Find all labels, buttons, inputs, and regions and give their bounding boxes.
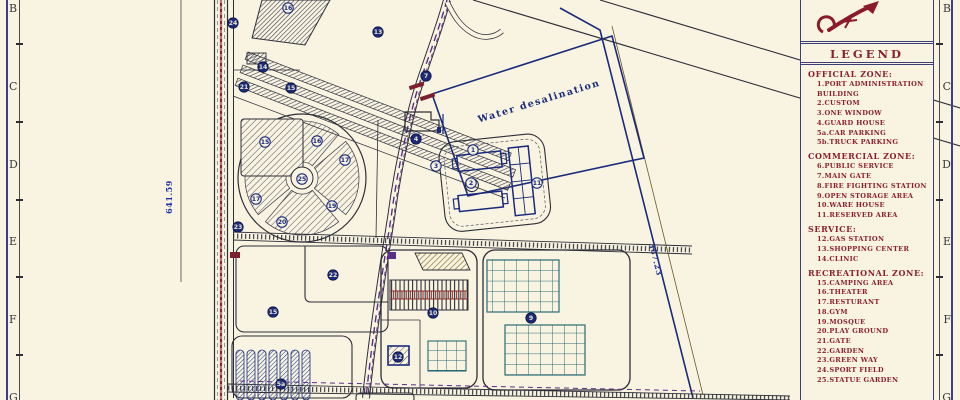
legend-item: 19.MOSQUE — [808, 318, 929, 328]
grid-row-label-f: F — [9, 313, 17, 326]
grid-row-label-d: D — [942, 158, 951, 171]
main-road — [366, 0, 502, 398]
dimension-left: 641.59 — [164, 0, 181, 282]
plan-marker-3: 3 — [431, 161, 441, 171]
svg-text:13: 13 — [374, 29, 383, 36]
grid-row-label-d: D — [9, 158, 18, 171]
plan-marker-10: 10 — [428, 308, 438, 318]
plan-marker-5a: 5a — [276, 379, 286, 389]
plan-marker-19: 19 — [327, 201, 337, 211]
svg-text:25: 25 — [298, 176, 307, 183]
svg-text:4: 4 — [414, 136, 419, 143]
statue-garden-roundabout — [238, 114, 378, 242]
svg-text:19: 19 — [328, 203, 337, 210]
water-desalination-label: Water desalination — [476, 78, 602, 126]
legend-item: 12.GAS STATION — [808, 235, 929, 245]
border-ruler-left: BCDEFG — [0, 0, 30, 400]
north-arrow-box — [801, 0, 933, 42]
legend-item: 13.SHOPPING CENTER — [808, 245, 929, 255]
plan-marker-17: 17 — [340, 155, 350, 165]
grid-tick — [16, 199, 23, 201]
svg-text:16: 16 — [313, 138, 322, 145]
plan-marker-12: 12 — [393, 352, 403, 362]
legend-section-heading: OFFICIAL ZONE: — [808, 69, 929, 80]
open-storage-block — [483, 250, 630, 390]
warehouse-block — [381, 250, 477, 388]
grid-row-label-g: G — [9, 391, 18, 400]
legend-panel: LEGEND OFFICIAL ZONE:1.PORT ADMINISTRATI… — [800, 0, 934, 400]
plan-marker-9: 9 — [526, 313, 536, 323]
grid-row-label-f: F — [943, 313, 951, 326]
grid-tick — [16, 43, 23, 45]
dim-left-value: 641.59 — [164, 180, 174, 214]
legend-item: 2.CUSTOM — [808, 99, 929, 109]
plan-marker-1: 1 — [468, 145, 478, 155]
plan-marker-23: 23 — [233, 222, 243, 232]
legend-item: 7.MAIN GATE — [808, 172, 929, 182]
legend-item: 3.ONE WINDOW — [808, 109, 929, 119]
grid-row-label-g: G — [942, 391, 951, 400]
legend-section-heading: SERVICE: — [808, 224, 929, 235]
plan-marker-16: 16 — [283, 3, 293, 13]
plan-marker-7: 7 — [421, 71, 431, 81]
legend-item: 5b.TRUCK PARKING — [808, 138, 929, 148]
legend-section-heading: COMMERCIAL ZONE: — [808, 151, 929, 162]
plan-marker-22: 22 — [328, 270, 338, 280]
legend-item: 5a.CAR PARKING — [808, 129, 929, 139]
grid-row-label-e: E — [943, 235, 951, 248]
svg-text:11: 11 — [533, 180, 542, 187]
legend-item: 25.STATUE GARDEN — [808, 376, 929, 386]
legend-item: 23.GREEN WAY — [808, 356, 929, 366]
svg-text:15: 15 — [269, 309, 278, 316]
bottom-road — [228, 381, 790, 400]
legend-item: 4.GUARD HOUSE — [808, 119, 929, 129]
legend-section-heading: RECREATIONAL ZONE: — [808, 268, 929, 279]
legend-item: 20.PLAY GROUND — [808, 327, 929, 337]
svg-text:12: 12 — [394, 354, 403, 361]
legend-item: 15.CAMPING AREA — [808, 279, 929, 289]
svg-text:16: 16 — [284, 5, 293, 12]
border-ruler-right: BCDEFG — [930, 0, 960, 400]
grid-tick — [16, 354, 23, 356]
legend-item: 21.GATE — [808, 337, 929, 347]
north-arrow-icon — [801, 0, 933, 40]
plan-marker-13: 13 — [373, 27, 383, 37]
legend-list: OFFICIAL ZONE:1.PORT ADMINISTRATION BUIL… — [801, 66, 933, 400]
svg-text:7: 7 — [424, 73, 428, 80]
svg-text:5a: 5a — [277, 381, 285, 388]
grid-row-label-b: B — [9, 2, 17, 15]
legend-item: 1.PORT ADMINISTRATION BUILDING — [808, 80, 929, 99]
plan-marker-15: 15 — [260, 137, 270, 147]
camping-parcel — [230, 246, 388, 332]
svg-text:9: 9 — [529, 315, 533, 322]
svg-text:22: 22 — [329, 272, 338, 279]
svg-text:14: 14 — [259, 64, 268, 71]
svg-text:2: 2 — [469, 180, 473, 187]
legend-item: 10.WARE HOUSE — [808, 201, 929, 211]
legend-item: 16.THEATER — [808, 288, 929, 298]
plan-marker-15: 15 — [268, 307, 278, 317]
legend-item: 6.PUBLIC SERVICE — [808, 162, 929, 172]
svg-text:17: 17 — [252, 196, 261, 203]
svg-text:3: 3 — [434, 163, 438, 170]
svg-text:23: 23 — [234, 224, 243, 231]
legend-item: 22.GARDEN — [808, 347, 929, 357]
svg-text:15: 15 — [287, 85, 296, 92]
legend-item: 24.SPORT FIELD — [808, 366, 929, 376]
legend-item: 9.OPEN STORAGE AREA — [808, 192, 929, 202]
plan-marker-21: 21 — [239, 82, 249, 92]
grid-tick — [936, 199, 943, 201]
grid-tick — [936, 354, 943, 356]
grid-row-label-c: C — [943, 80, 951, 93]
plan-marker-24: 24 — [228, 18, 238, 28]
grid-row-label-b: B — [943, 2, 951, 15]
legend-item: 8.FIRE FIGHTING STATION — [808, 182, 929, 192]
legend-item: 18.GYM — [808, 308, 929, 318]
legend-item: 11.RESERVED AREA — [808, 211, 929, 221]
plan-marker-20: 20 — [277, 217, 287, 227]
plan-marker-17: 17 — [251, 194, 261, 204]
plan-marker-25: 25 — [297, 174, 307, 184]
grid-row-label-c: C — [9, 80, 17, 93]
west-road — [215, 0, 234, 400]
svg-text:17: 17 — [341, 157, 350, 164]
svg-text:1: 1 — [471, 147, 475, 154]
svg-text:24: 24 — [229, 20, 238, 27]
cad-drawing-sheet: 641.59 367.23 Water desalination — [0, 0, 960, 400]
svg-text:21: 21 — [240, 84, 249, 91]
grid-tick — [936, 276, 943, 278]
plan-marker-16: 16 — [312, 136, 322, 146]
legend-title: LEGEND — [830, 47, 904, 61]
plan-marker-4: 4 — [411, 134, 421, 144]
grid-row-label-e: E — [9, 235, 17, 248]
legend-header: LEGEND — [801, 43, 933, 63]
plan-marker-2: 2 — [466, 178, 476, 188]
plan-marker-14: 14 — [258, 62, 268, 72]
svg-text:15: 15 — [261, 139, 270, 146]
plan-marker-11: 11 — [532, 178, 542, 188]
svg-text:10: 10 — [429, 310, 438, 317]
plan-marker-15: 15 — [286, 83, 296, 93]
legend-item: 17.RESTURANT — [808, 298, 929, 308]
grid-tick — [936, 43, 943, 45]
svg-text:20: 20 — [278, 219, 287, 226]
grid-tick — [16, 121, 23, 123]
grid-tick — [16, 276, 23, 278]
grid-tick — [936, 121, 943, 123]
legend-item: 14.CLINIC — [808, 255, 929, 265]
